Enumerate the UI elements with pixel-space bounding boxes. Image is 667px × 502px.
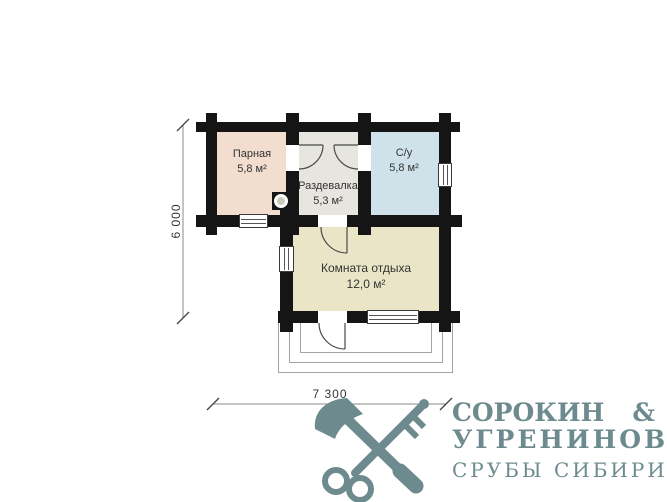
key-icon: [325, 399, 429, 500]
stove-ring: [274, 194, 288, 208]
window-pane: [443, 165, 444, 185]
room-area: 5,8 м²: [217, 162, 287, 177]
door-opening-entrance: [318, 311, 347, 323]
stove-icon: [272, 192, 290, 210]
label-su: С/у 5,8 м²: [366, 146, 442, 176]
room-area: 12,0 м²: [293, 276, 439, 292]
room-area: 5,8 м²: [366, 161, 442, 176]
dimension-width: 7 300: [300, 387, 360, 401]
window-pane: [447, 165, 448, 185]
room-area: 5,3 м²: [290, 194, 366, 209]
wall-su-divider-top: [358, 113, 371, 145]
wall-left: [206, 113, 217, 235]
logo-name-line1: СОРОКИН &: [452, 399, 655, 426]
logo-tagline: СРУБЫ СИБИРИ: [452, 458, 655, 482]
window-pane: [241, 219, 266, 220]
logo-name-line2: УГРЕНИНОВ: [452, 426, 655, 454]
wall-top: [196, 122, 460, 132]
window-komnata-south: [367, 310, 419, 324]
room-name: С/у: [366, 146, 442, 161]
wall-komnata-left-top: [280, 208, 293, 247]
label-komnata: Комната отдыха 12,0 м²: [293, 260, 439, 292]
wall-parnaya-divider-top: [286, 113, 299, 145]
door-opening-parnaya: [286, 145, 299, 171]
window-parnaya-south: [239, 214, 268, 228]
wall-komnata-left-bottom: [280, 272, 293, 332]
label-parnaya: Парная 5,8 м²: [217, 147, 287, 177]
logo-emblem: [303, 393, 453, 502]
dimension-tick: [177, 119, 189, 131]
window-pane: [284, 248, 285, 270]
key-tooth: [413, 416, 424, 427]
room-name: Раздевалка: [290, 179, 366, 194]
key-bow-ring: [349, 478, 371, 500]
logo-ampersand: &: [632, 399, 655, 426]
window-pane: [369, 315, 417, 316]
axe-handle-end: [400, 471, 416, 486]
dimension-tick: [207, 398, 219, 410]
window-pane: [369, 319, 417, 320]
wall-right-bottom: [439, 186, 451, 332]
axe-handle: [343, 415, 415, 485]
logo-name-left: СОРОКИН: [452, 399, 604, 426]
key-tooth: [404, 424, 417, 437]
dimension-height: 6 000: [169, 193, 183, 249]
room-name: Комната отдыха: [293, 260, 439, 276]
window-komnata-west: [279, 246, 294, 272]
key-shaft: [355, 407, 421, 473]
floor-plan-page: Парная 5,8 м² Раздевалка 5,3 м² С/у 5,8 …: [0, 0, 667, 502]
key-tip-ball: [419, 399, 429, 409]
axe-icon: [315, 398, 416, 486]
window-pane: [241, 223, 266, 224]
label-razdevalka: Раздевалка 5,3 м²: [290, 179, 366, 209]
room-name: Парная: [217, 147, 287, 162]
key-bow-ring: [325, 470, 347, 492]
logo-text-block: СОРОКИН & УГРЕНИНОВ СРУБЫ СИБИРИ: [452, 399, 655, 482]
door-opening-komnata: [318, 215, 347, 227]
axe-blade: [315, 398, 363, 439]
dimension-tick: [440, 398, 452, 410]
window-pane: [288, 248, 289, 270]
dimension-tick: [177, 312, 189, 324]
